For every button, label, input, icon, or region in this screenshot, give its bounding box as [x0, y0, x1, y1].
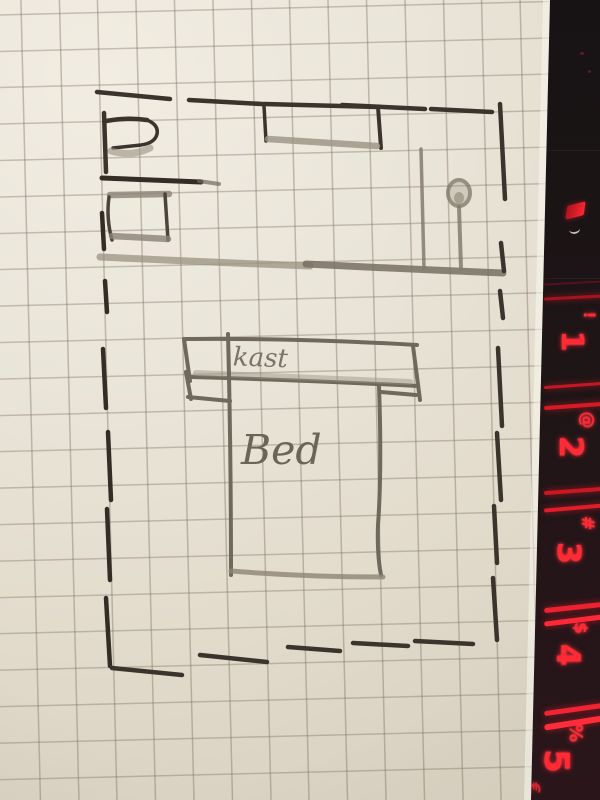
sink-rect — [108, 194, 169, 240]
counter-line — [102, 178, 219, 184]
key-5: 5 — [536, 741, 576, 781]
door-shape — [104, 113, 157, 172]
mid-wall — [100, 257, 503, 273]
key-glow-line — [544, 382, 600, 389]
key-glow-line — [544, 487, 600, 495]
key-4: 4 — [550, 637, 586, 673]
photo-scene: kast Bed 1 ! 2 @ 3 # 4 $ 5 % € — [0, 0, 600, 800]
window-rect — [264, 104, 381, 148]
key-glow-line — [544, 703, 600, 716]
key-5-symbol: % — [564, 722, 586, 744]
key-glow-line — [544, 280, 600, 285]
red-reflection-streak — [565, 201, 585, 219]
key-2-symbol: @ — [577, 410, 597, 430]
key-2: 2 — [553, 429, 589, 465]
red-reflection-dot — [580, 52, 584, 55]
lamp-circle — [421, 149, 470, 268]
key-1-symbol: ! — [580, 306, 598, 324]
top-wall — [97, 92, 492, 112]
bottom-wall — [112, 641, 473, 675]
kast-label: kast — [232, 342, 289, 374]
key-3-symbol: # — [577, 513, 597, 533]
key-4-symbol: $ — [570, 618, 590, 638]
left-wall — [102, 213, 111, 666]
bed-label: Bed — [240, 426, 322, 474]
floorplan-sketch: kast Bed — [0, 0, 600, 800]
key-glow-line — [544, 503, 600, 512]
red-reflection-dot — [588, 70, 591, 73]
key-glow-line — [544, 294, 600, 300]
laptop-seam — [545, 278, 600, 279]
laptop-seam — [545, 150, 600, 151]
right-wall — [493, 104, 505, 640]
key-glow-line — [544, 402, 600, 410]
key-glow-line — [544, 602, 600, 613]
kast-wardrobe — [184, 339, 420, 401]
white-reflection-mark — [568, 223, 581, 235]
key-1: 1 — [554, 324, 588, 358]
key-3: 3 — [551, 535, 587, 571]
